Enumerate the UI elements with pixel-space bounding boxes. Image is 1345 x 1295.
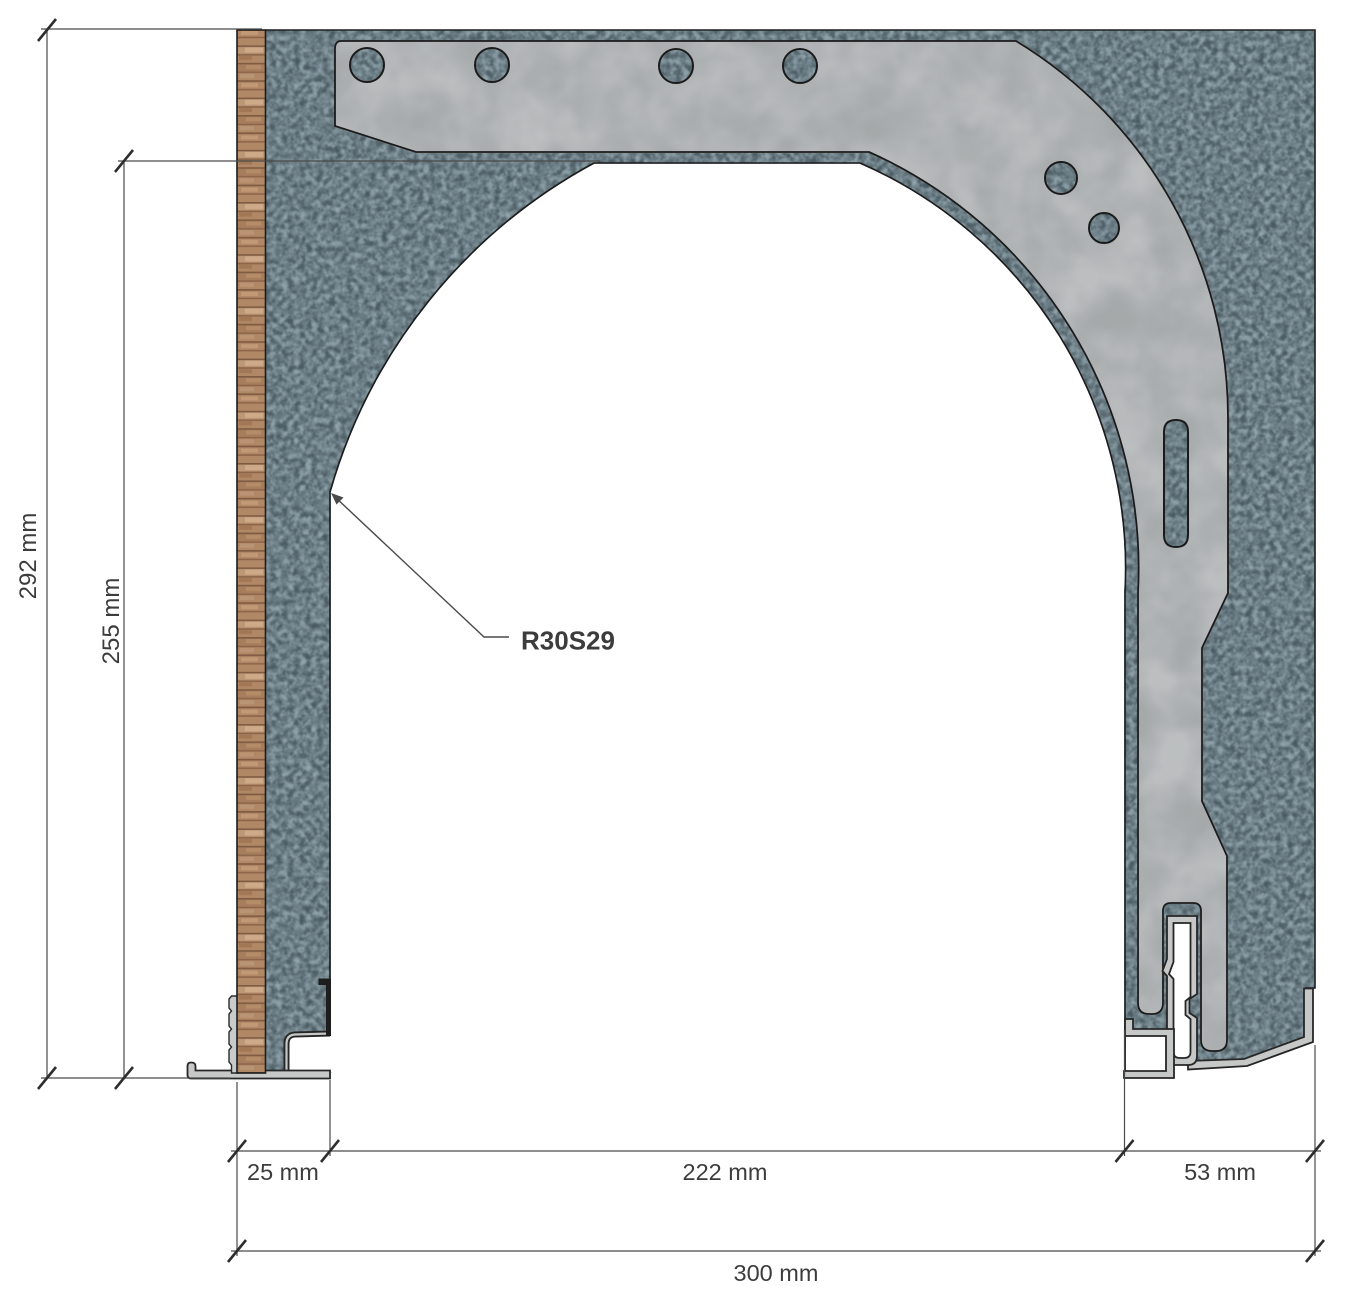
svg-text:25 mm: 25 mm: [247, 1159, 319, 1185]
svg-text:53 mm: 53 mm: [1184, 1159, 1256, 1185]
svg-text:255 mm: 255 mm: [98, 578, 125, 665]
svg-text:222 mm: 222 mm: [683, 1159, 768, 1185]
svg-text:300 mm: 300 mm: [734, 1260, 819, 1286]
svg-text:R30S29: R30S29: [521, 626, 615, 656]
svg-text:292 mm: 292 mm: [15, 513, 42, 600]
